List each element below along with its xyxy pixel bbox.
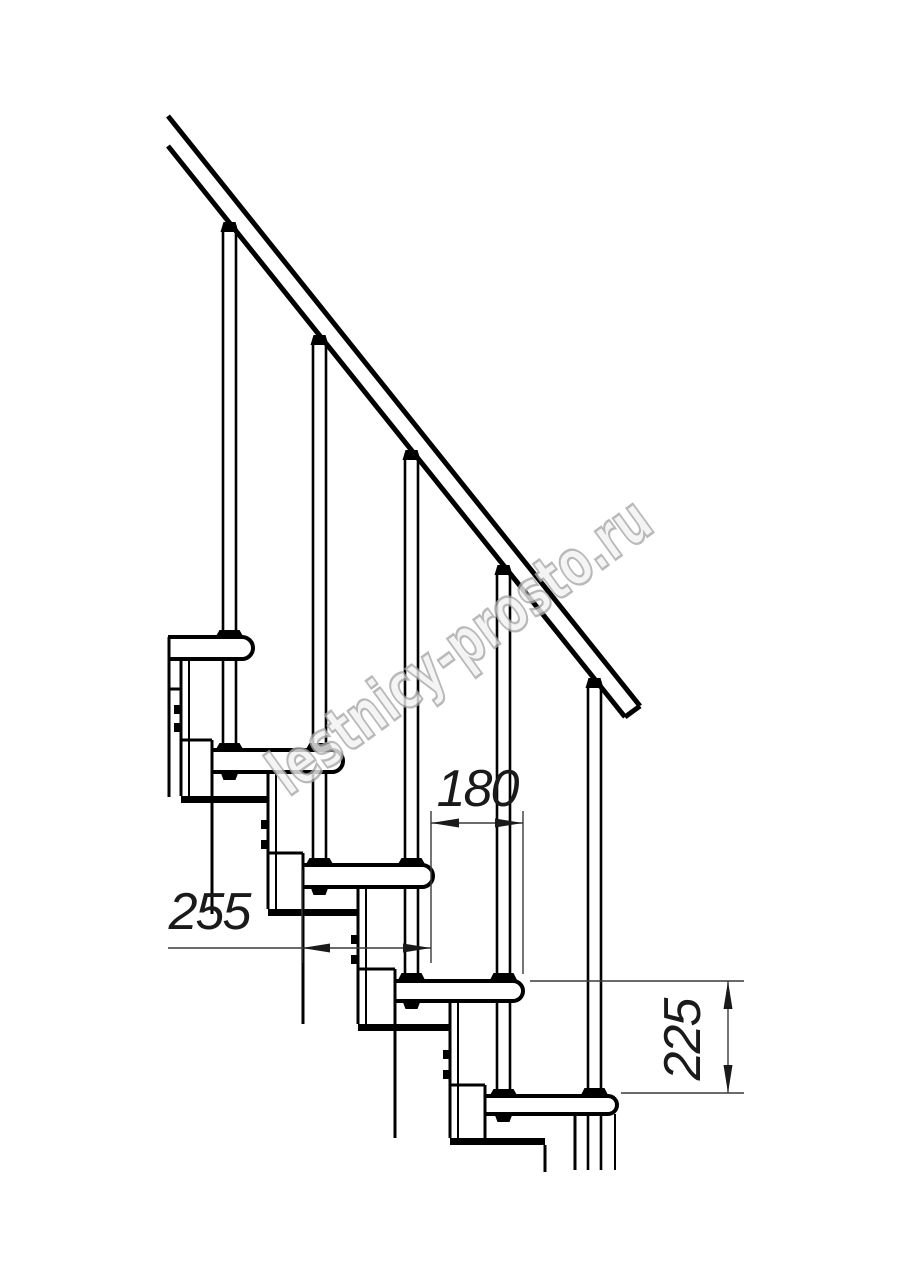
module-2-bolt-upper [261, 820, 268, 829]
module-2-base-plate [268, 909, 358, 916]
module-3-base-plate [358, 1024, 450, 1031]
module-1-bolt-lower [174, 723, 181, 732]
dimension-225: 225 [530, 981, 744, 1093]
baluster-2-rail-connector [306, 335, 334, 895]
module-4-bolt-lower [443, 1070, 450, 1079]
module-1-base-plate [181, 796, 268, 803]
module-3-bolt-lower [351, 955, 358, 964]
module-5 [545, 1114, 615, 1172]
dim-225-arrow-bottom [724, 1065, 733, 1093]
baluster-5-rail-connector [581, 678, 609, 1096]
dim-255-label: 255 [168, 883, 253, 941]
tread-1 [168, 637, 253, 659]
tread-4 [395, 981, 523, 1001]
module-4 [443, 1001, 545, 1145]
tread-5 [485, 1096, 617, 1114]
module-4-base-plate [450, 1138, 545, 1145]
module-3-bolt-upper [351, 935, 358, 944]
drawing-canvas: 180 255 225 lestnicy-prosto.ru [0, 0, 914, 1280]
module-2-bolt-lower [261, 840, 268, 849]
dim-180-label: 180 [437, 760, 520, 818]
dim-180-arrow-left [431, 819, 459, 828]
baluster-1-rail-connector [216, 222, 244, 780]
dim-225-arrow-top [724, 981, 733, 1009]
module-1-bolt-upper [174, 705, 181, 714]
stair-drawing: 180 255 225 lestnicy-prosto.ru [0, 0, 914, 1280]
tread-3 [303, 865, 433, 887]
module-2 [261, 772, 358, 1024]
module-3 [351, 887, 450, 1138]
dim-255-arrow-left [302, 944, 330, 953]
module-1 [168, 637, 268, 914]
dim-225-label: 225 [654, 997, 712, 1082]
baluster-1 [216, 222, 244, 780]
baluster-2 [306, 335, 334, 895]
module-4-bolt-upper [443, 1050, 450, 1059]
